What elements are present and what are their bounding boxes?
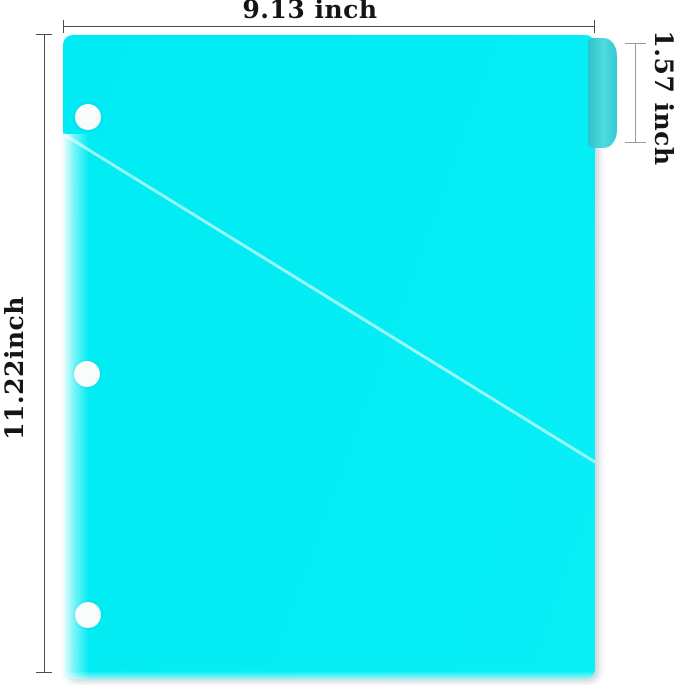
binder-hole-icon: [74, 361, 100, 387]
dimension-tick: [36, 672, 52, 673]
index-tab: [588, 38, 617, 148]
dimension-tick: [594, 20, 595, 33]
bottom-edge-highlight: [63, 671, 595, 679]
dimension-line: [635, 43, 636, 143]
pocket-diagonal-edge: [63, 134, 595, 462]
pocket-edge-highlight: [63, 134, 89, 679]
binder-hole-icon: [75, 602, 101, 628]
width-dimension-label: 9.13 inch: [44, 0, 576, 23]
dimension-line: [44, 34, 45, 673]
tab-dimension-line: [625, 43, 646, 143]
tab-height-dimension-label: 1.57 inch: [650, 30, 676, 165]
binder-hole-icon: [75, 104, 101, 130]
height-dimension-label: 11.22inch: [2, 296, 28, 440]
pocket-overlay: [63, 35, 595, 679]
dimension-line: [63, 26, 595, 27]
dimension-tick: [625, 142, 646, 143]
folder-body: [63, 35, 595, 679]
height-dimension-line: [36, 34, 52, 673]
product-diagram: 9.13 inch 11.22inch 1.57 inch: [0, 0, 679, 685]
